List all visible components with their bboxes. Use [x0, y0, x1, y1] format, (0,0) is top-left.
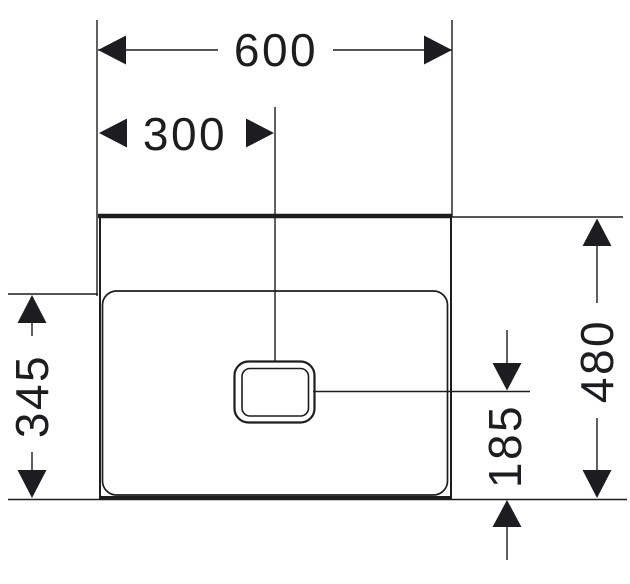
dim-apron-height-group: 345: [6, 295, 58, 498]
arrow-up-icon: [583, 219, 612, 247]
dim-drain-height-label: 185: [479, 404, 531, 488]
washbasin-dimension-drawing: 600 300: [0, 0, 630, 584]
arrow-down-icon: [18, 470, 47, 498]
arrow-down-icon: [493, 363, 522, 391]
dimension-drawing-canvas: 600 300: [0, 0, 630, 584]
arrow-right-icon: [246, 119, 274, 148]
dim-offset-group: 300: [99, 107, 275, 361]
drain-cover-inner: [242, 369, 309, 417]
dim-width-label: 600: [234, 24, 318, 76]
dim-total-height-group: 480: [571, 219, 623, 499]
arrow-up-icon: [493, 500, 522, 527]
dim-drain-height-group: 185: [479, 330, 531, 560]
dim-apron-height-label: 345: [6, 354, 58, 438]
arrow-right-icon: [424, 36, 452, 65]
dim-total-height-label: 480: [571, 319, 623, 403]
dim-offset-label: 300: [143, 108, 227, 160]
drain-cover-outer: [235, 362, 315, 423]
arrow-down-icon: [583, 470, 612, 498]
arrow-left-icon: [98, 36, 126, 65]
arrow-left-icon: [99, 119, 127, 148]
arrow-up-icon: [18, 295, 47, 323]
